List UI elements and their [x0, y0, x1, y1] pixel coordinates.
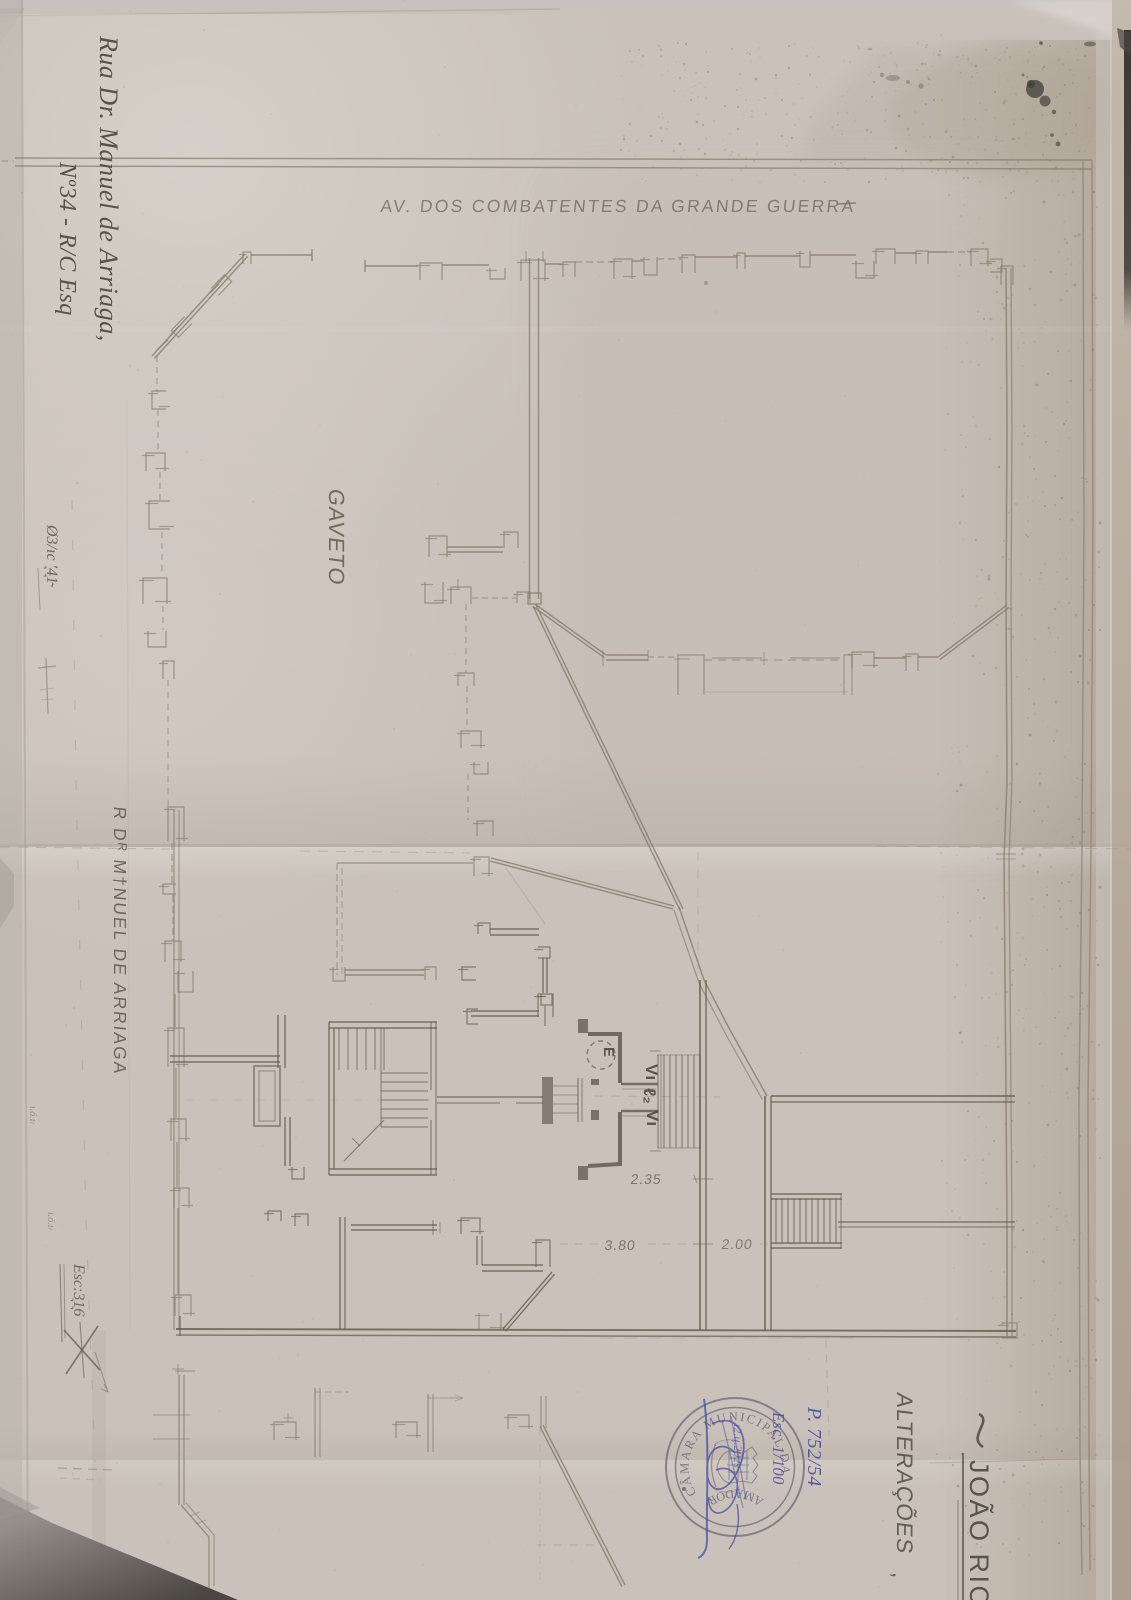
svg-text:ı.ó.ıₗ: ı.ó.ıₗ [27, 1106, 38, 1125]
svg-text:Eѕc. 1/100: Eѕc. 1/100 [769, 1411, 788, 1485]
svg-text:ı.ó.ıₗ: ı.ó.ıₗ [45, 1212, 56, 1231]
svg-text:,: , [888, 1572, 913, 1578]
svg-text:GAVETO: GAVETO [324, 487, 349, 587]
svg-text:Nº34 - R/C Esq: Nº34 - R/C Esq [54, 161, 80, 316]
svg-text:3.80: 3.80 [604, 1237, 637, 1253]
svg-text:ALTERAÇÕES: ALTERAÇÕES [892, 1391, 917, 1556]
svg-text:AV. DOS COMBATENTES DA GRANDE: AV. DOS COMBATENTES DA GRANDE GUERRA [380, 196, 857, 216]
svg-text:R Dᴿ M†NUEL DE ARRIAGA: R Dᴿ M†NUEL DE ARRIAGA [110, 806, 130, 1077]
svg-text:P. 752/54: P. 752/54 [803, 1406, 825, 1487]
svg-text:Vı: Vı [643, 1110, 662, 1126]
svg-text:ℓ₂: ℓ₂ [640, 1088, 659, 1104]
svg-text:2.35: 2.35 [630, 1171, 663, 1187]
svg-text:Eѕc:3͉1͉6: Eѕc:3͉1͉6 [70, 1263, 87, 1316]
svg-text:Ø3/ıc ′͉4͉1̴: Ø3/ıc ′͉4͉1̴ [43, 524, 60, 588]
svg-text:E: E [600, 1047, 617, 1057]
svg-text:Vı: Vı [642, 1064, 661, 1080]
svg-text:2.00: 2.00 [721, 1236, 754, 1252]
svg-text:JOÃO RIC: JOÃO RIC [964, 1460, 995, 1600]
svg-text:Rua Dr. Manuel de Arriaga,: Rua Dr. Manuel de Arriaga, [94, 35, 123, 342]
